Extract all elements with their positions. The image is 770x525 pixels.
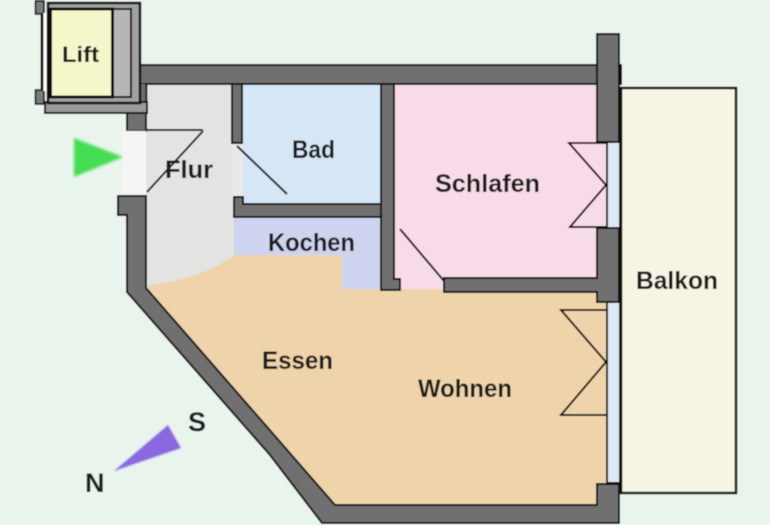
svg-text:S: S [188,407,206,437]
svg-text:Flur: Flur [165,156,213,184]
svg-text:Wohnen: Wohnen [418,375,512,403]
svg-text:Schlafen: Schlafen [435,170,540,198]
svg-text:Essen: Essen [262,347,333,375]
svg-text:Bad: Bad [292,136,335,164]
svg-text:Balkon: Balkon [636,267,718,295]
svg-text:N: N [85,468,105,498]
svg-text:Kochen: Kochen [268,229,355,257]
svg-text:Lift: Lift [62,42,100,67]
